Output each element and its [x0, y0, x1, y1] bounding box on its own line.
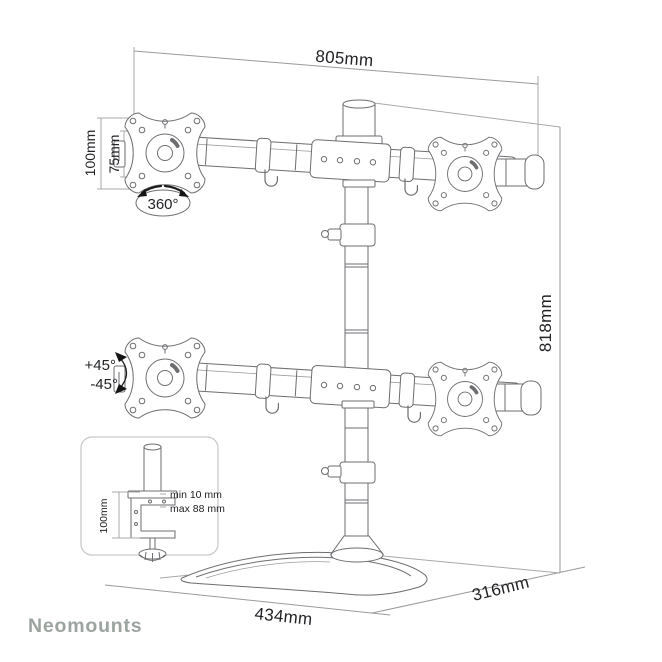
tilt-plus-label: +45° — [85, 357, 116, 374]
cable-hook-icon — [408, 406, 420, 422]
clamp-inset: 100mm min 10 mm max 88 mm — [81, 437, 225, 562]
arm-endcap-upper-right — [494, 155, 544, 189]
vesa-plate-lower-right — [428, 362, 502, 436]
vesa-plate-upper-left — [125, 113, 205, 193]
vesa-outer-label: 100mm — [82, 130, 98, 177]
clamp-height-label: 100mm — [98, 498, 110, 533]
cable-hook-icon — [266, 397, 278, 413]
tilt-minus-label: -45° — [90, 376, 118, 393]
column-height-label: 818mm — [536, 294, 555, 352]
diagram-page: 360° +45° -45° 805mm 818mm 100mm 75mm 43… — [0, 0, 662, 662]
upper-bar-mount-flange — [343, 180, 375, 187]
vesa-plate-upper-right — [428, 137, 502, 211]
clamp-min-label: min 10 mm — [170, 489, 222, 501]
lower-bar-mount-flange — [342, 401, 374, 408]
base-width-label: 434mm — [254, 604, 314, 629]
rotation-annotation: 360° — [136, 186, 190, 216]
arm-endcap-lower-right — [494, 381, 541, 415]
base-depth-label: 316mm — [470, 572, 531, 605]
pole-collar-upper — [322, 224, 376, 246]
rotation-label: 360° — [147, 196, 178, 213]
brand-logo: Neomounts — [28, 615, 142, 637]
clamp-max-label: max 88 mm — [170, 503, 225, 515]
pole-collar-lower — [322, 462, 376, 483]
vesa-plate-lower-left — [125, 338, 205, 418]
base-plate — [181, 552, 427, 595]
vesa-inner-label: 75mm — [106, 135, 122, 174]
technical-drawing: 360° +45° -45° 805mm 818mm 100mm 75mm 43… — [0, 0, 662, 662]
